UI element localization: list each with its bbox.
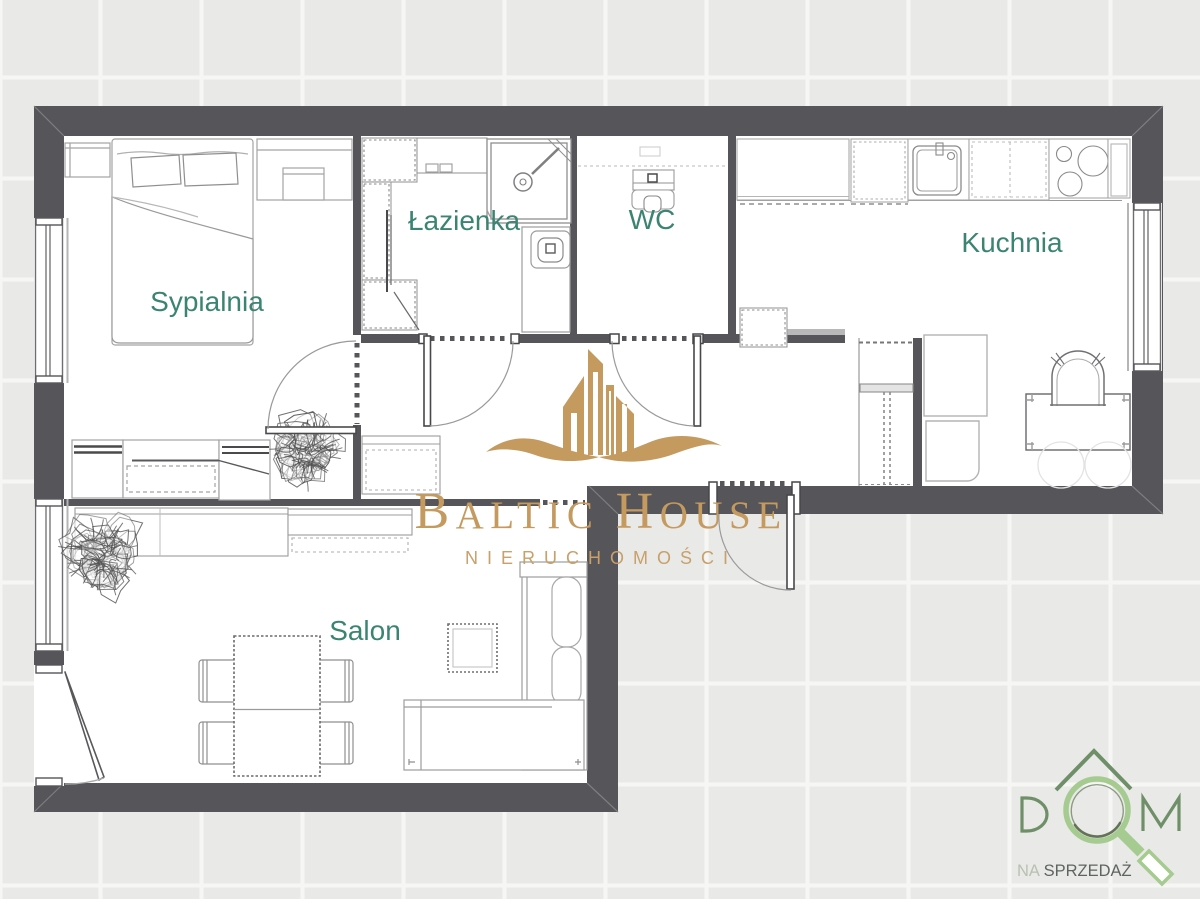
svg-text:Łazienka: Łazienka bbox=[408, 205, 521, 236]
svg-text:NA SPRZEDAŻ: NA SPRZEDAŻ bbox=[1017, 861, 1132, 880]
svg-text:Salon: Salon bbox=[329, 615, 401, 646]
svg-text:Sypialnia: Sypialnia bbox=[150, 286, 264, 317]
svg-text:Kuchnia: Kuchnia bbox=[961, 227, 1063, 258]
svg-text:WC: WC bbox=[629, 204, 676, 235]
svg-text:NIERUCHOMOŚCI: NIERUCHOMOŚCI bbox=[465, 547, 737, 568]
